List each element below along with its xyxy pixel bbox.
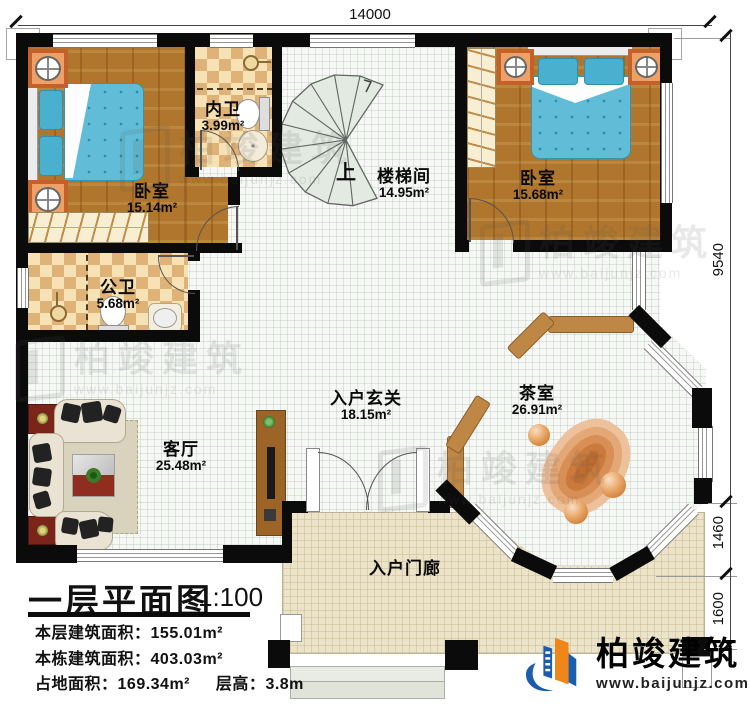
plan-scale: 1:100 — [198, 582, 263, 613]
bay-window — [553, 568, 613, 583]
wall-bedroom-right-left — [455, 47, 467, 250]
room-label-foyer: 入户玄关18.15m² — [330, 390, 402, 422]
dimension-top-value: 14000 — [330, 6, 410, 23]
room-label-public-bath: 公卫5.68m² — [97, 279, 140, 311]
stat-footprint-height: 占地面积：169.34m² 层高：3.8m — [35, 670, 304, 694]
bay-window — [632, 252, 646, 310]
lamp-icon — [635, 56, 658, 78]
bay-window — [698, 426, 713, 482]
lamp-icon — [35, 187, 61, 212]
shower-head-icon — [50, 305, 67, 322]
wall-foyer-step — [282, 505, 292, 563]
wardrobe-right — [467, 48, 496, 168]
wall-innerbath-left — [185, 47, 195, 177]
cushion — [97, 516, 113, 532]
dimension-right-main: 9540 — [710, 243, 727, 276]
brand-logo: 柏竣建筑 www.baijunjz.com — [524, 634, 749, 694]
brand-name: 柏竣建筑 — [596, 637, 749, 670]
stat-floor-area: 本层建筑面积：155.01m² — [35, 619, 223, 643]
window — [310, 34, 415, 48]
tea-stone-ball — [564, 500, 588, 524]
stat-building-area: 本栋建筑面积：403.03m² — [35, 645, 223, 669]
plant-icon — [263, 416, 275, 428]
bed-left — [28, 82, 142, 180]
window — [17, 268, 29, 308]
dimension-line-top — [18, 25, 712, 26]
tea-screen — [548, 316, 634, 333]
wall-innerbath-bottom — [185, 167, 199, 177]
plant-icon — [37, 525, 48, 536]
wall-bedroom-right-bottom — [513, 240, 672, 252]
door-leaf — [200, 130, 202, 170]
door-leaf — [158, 255, 194, 257]
lamp-icon — [504, 56, 527, 78]
title-underline — [28, 612, 250, 617]
dimension-right-low: 1600 — [710, 592, 727, 625]
shower-arm — [257, 61, 271, 63]
room-label-inner-bath: 内卫3.99m² — [202, 101, 245, 133]
nightstand — [497, 49, 534, 85]
lamp-icon — [35, 56, 61, 81]
window — [210, 34, 253, 48]
plant-icon — [84, 466, 103, 485]
tea-stone-ball — [528, 424, 550, 446]
window — [53, 34, 157, 48]
tv-icon — [267, 447, 275, 499]
coffee-table — [72, 454, 115, 497]
entry-door-post — [416, 448, 430, 512]
dimension-right-mid: 1460 — [710, 516, 727, 549]
wall-bedroom-left-right — [228, 177, 240, 205]
cushion — [60, 402, 81, 423]
dimension-line-right — [730, 33, 731, 656]
plant-icon — [37, 413, 48, 424]
side-table — [28, 516, 58, 545]
shower-divider — [197, 88, 273, 90]
dimension-tick — [703, 15, 716, 28]
porch-column — [268, 640, 290, 668]
bed-headboard — [28, 82, 38, 180]
dimension-tick — [9, 15, 22, 28]
bed-right — [528, 46, 632, 158]
cushion — [78, 518, 99, 539]
bed-pillow — [39, 90, 63, 130]
room-label-stairwell: 楼梯间14.95m² — [377, 168, 431, 200]
shower-head-icon — [243, 55, 259, 71]
porch-column — [445, 640, 478, 670]
sink — [238, 130, 268, 162]
bed-headboard — [528, 46, 632, 56]
wall-innerbath-right — [272, 47, 282, 177]
room-label-tea: 茶室26.91m² — [512, 385, 562, 417]
stair-up-label: 上 — [336, 163, 356, 184]
wall-publicbath-bottom — [16, 330, 200, 342]
sink-basin — [153, 308, 177, 328]
bed-pillow — [584, 58, 624, 85]
door-leaf — [469, 198, 471, 242]
brand-url: www.baijunjz.com — [596, 675, 749, 692]
wall-living-bottom — [16, 545, 77, 563]
cushion — [81, 401, 104, 424]
porch-step — [290, 681, 445, 699]
nightstand — [28, 49, 68, 88]
cushion — [61, 517, 80, 536]
room-label-porch: 入户门廊 — [369, 560, 441, 578]
bed-pillow — [538, 58, 578, 85]
cushion — [32, 443, 53, 464]
shower-arm — [56, 292, 58, 306]
decor-item — [264, 509, 276, 521]
cushion — [32, 467, 52, 487]
wardrobe-left — [28, 212, 149, 243]
room-label-bedroom-right: 卧室15.68m² — [513, 170, 563, 202]
bay-pier — [694, 478, 712, 504]
brand-mark-icon — [524, 634, 586, 694]
room-label-bedroom-left: 卧室15.14m² — [127, 183, 177, 215]
porch-side-box — [280, 614, 302, 642]
floor-plan-canvas: 卧室15.14m² 内卫3.99m² 楼梯间14.95m² 上 卧室15.68m… — [0, 0, 750, 713]
window — [77, 549, 223, 562]
bed-pillow — [39, 136, 63, 176]
room-label-living: 客厅25.48m² — [156, 441, 206, 473]
bay-pier — [692, 388, 712, 428]
tea-stone-ball — [600, 472, 626, 498]
toilet-tank — [259, 97, 270, 131]
sink — [148, 303, 182, 333]
wall-innerbath-bottom — [237, 167, 282, 177]
window — [661, 83, 673, 203]
door-leaf — [236, 206, 238, 250]
wall-entry-left — [282, 501, 308, 513]
shower-divider — [86, 255, 88, 330]
